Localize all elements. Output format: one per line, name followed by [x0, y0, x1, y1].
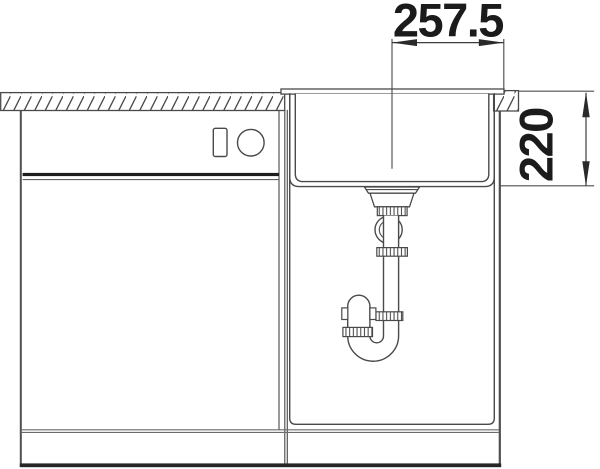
control-knob-circle — [238, 129, 265, 156]
strainer-cup — [370, 193, 414, 207]
arrow-up-icon — [582, 92, 589, 117]
locknut-1 — [377, 207, 407, 216]
control-rectangle — [213, 128, 227, 156]
appliance-front — [23, 128, 279, 179]
drawing-canvas: 257.5 220 — [0, 0, 600, 469]
dimension-vertical-value: 220 — [510, 108, 563, 182]
tailpipe-and-u-bend — [348, 216, 399, 362]
locknut-4 — [343, 327, 373, 336]
sink-installation-drawing: 257.5 220 — [0, 0, 600, 469]
locknut-2 — [377, 248, 408, 257]
trap-side-tab-left — [342, 308, 348, 320]
arrow-down-icon — [582, 161, 589, 186]
locknut-3 — [376, 312, 403, 321]
trap-side-tab-right — [370, 308, 376, 320]
drain-trap-assembly — [342, 187, 420, 361]
drawer-gap-thick-line — [23, 173, 279, 176]
cabinet-plinth-base — [20, 463, 501, 467]
countertop-left-section — [1, 93, 285, 111]
dimension-horizontal-value: 257.5 — [393, 0, 503, 47]
